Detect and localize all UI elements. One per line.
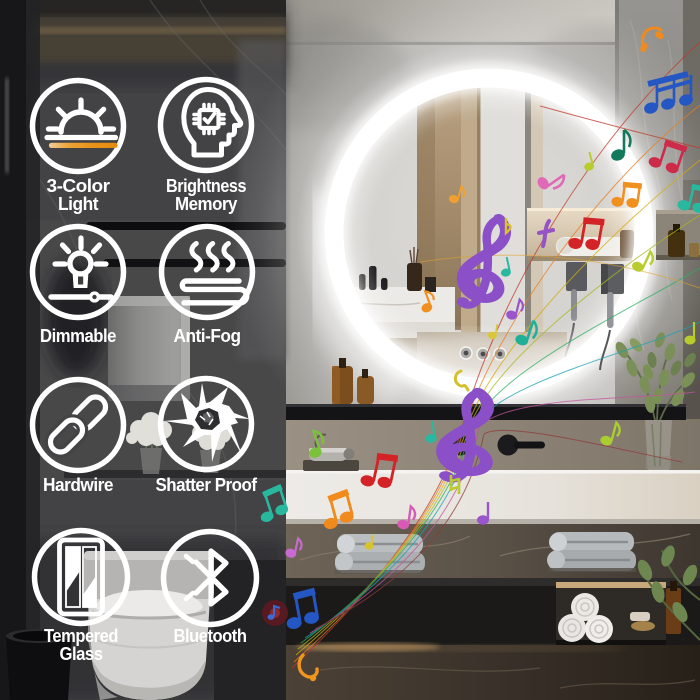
svg-text:Anti-Fog: Anti-Fog <box>174 326 241 346</box>
svg-text:Brightness: Brightness <box>166 176 246 196</box>
svg-text:Shatter Proof: Shatter Proof <box>156 475 258 495</box>
svg-text:Tempered: Tempered <box>44 626 118 646</box>
svg-text:Bluetooth: Bluetooth <box>174 626 247 646</box>
svg-text:3-Color: 3-Color <box>47 176 111 196</box>
svg-text:Light: Light <box>58 194 98 214</box>
svg-text:Memory: Memory <box>175 194 237 214</box>
svg-text:Glass: Glass <box>60 644 103 664</box>
svg-text:Dimmable: Dimmable <box>40 326 116 346</box>
svg-text:Hardwire: Hardwire <box>43 475 113 495</box>
